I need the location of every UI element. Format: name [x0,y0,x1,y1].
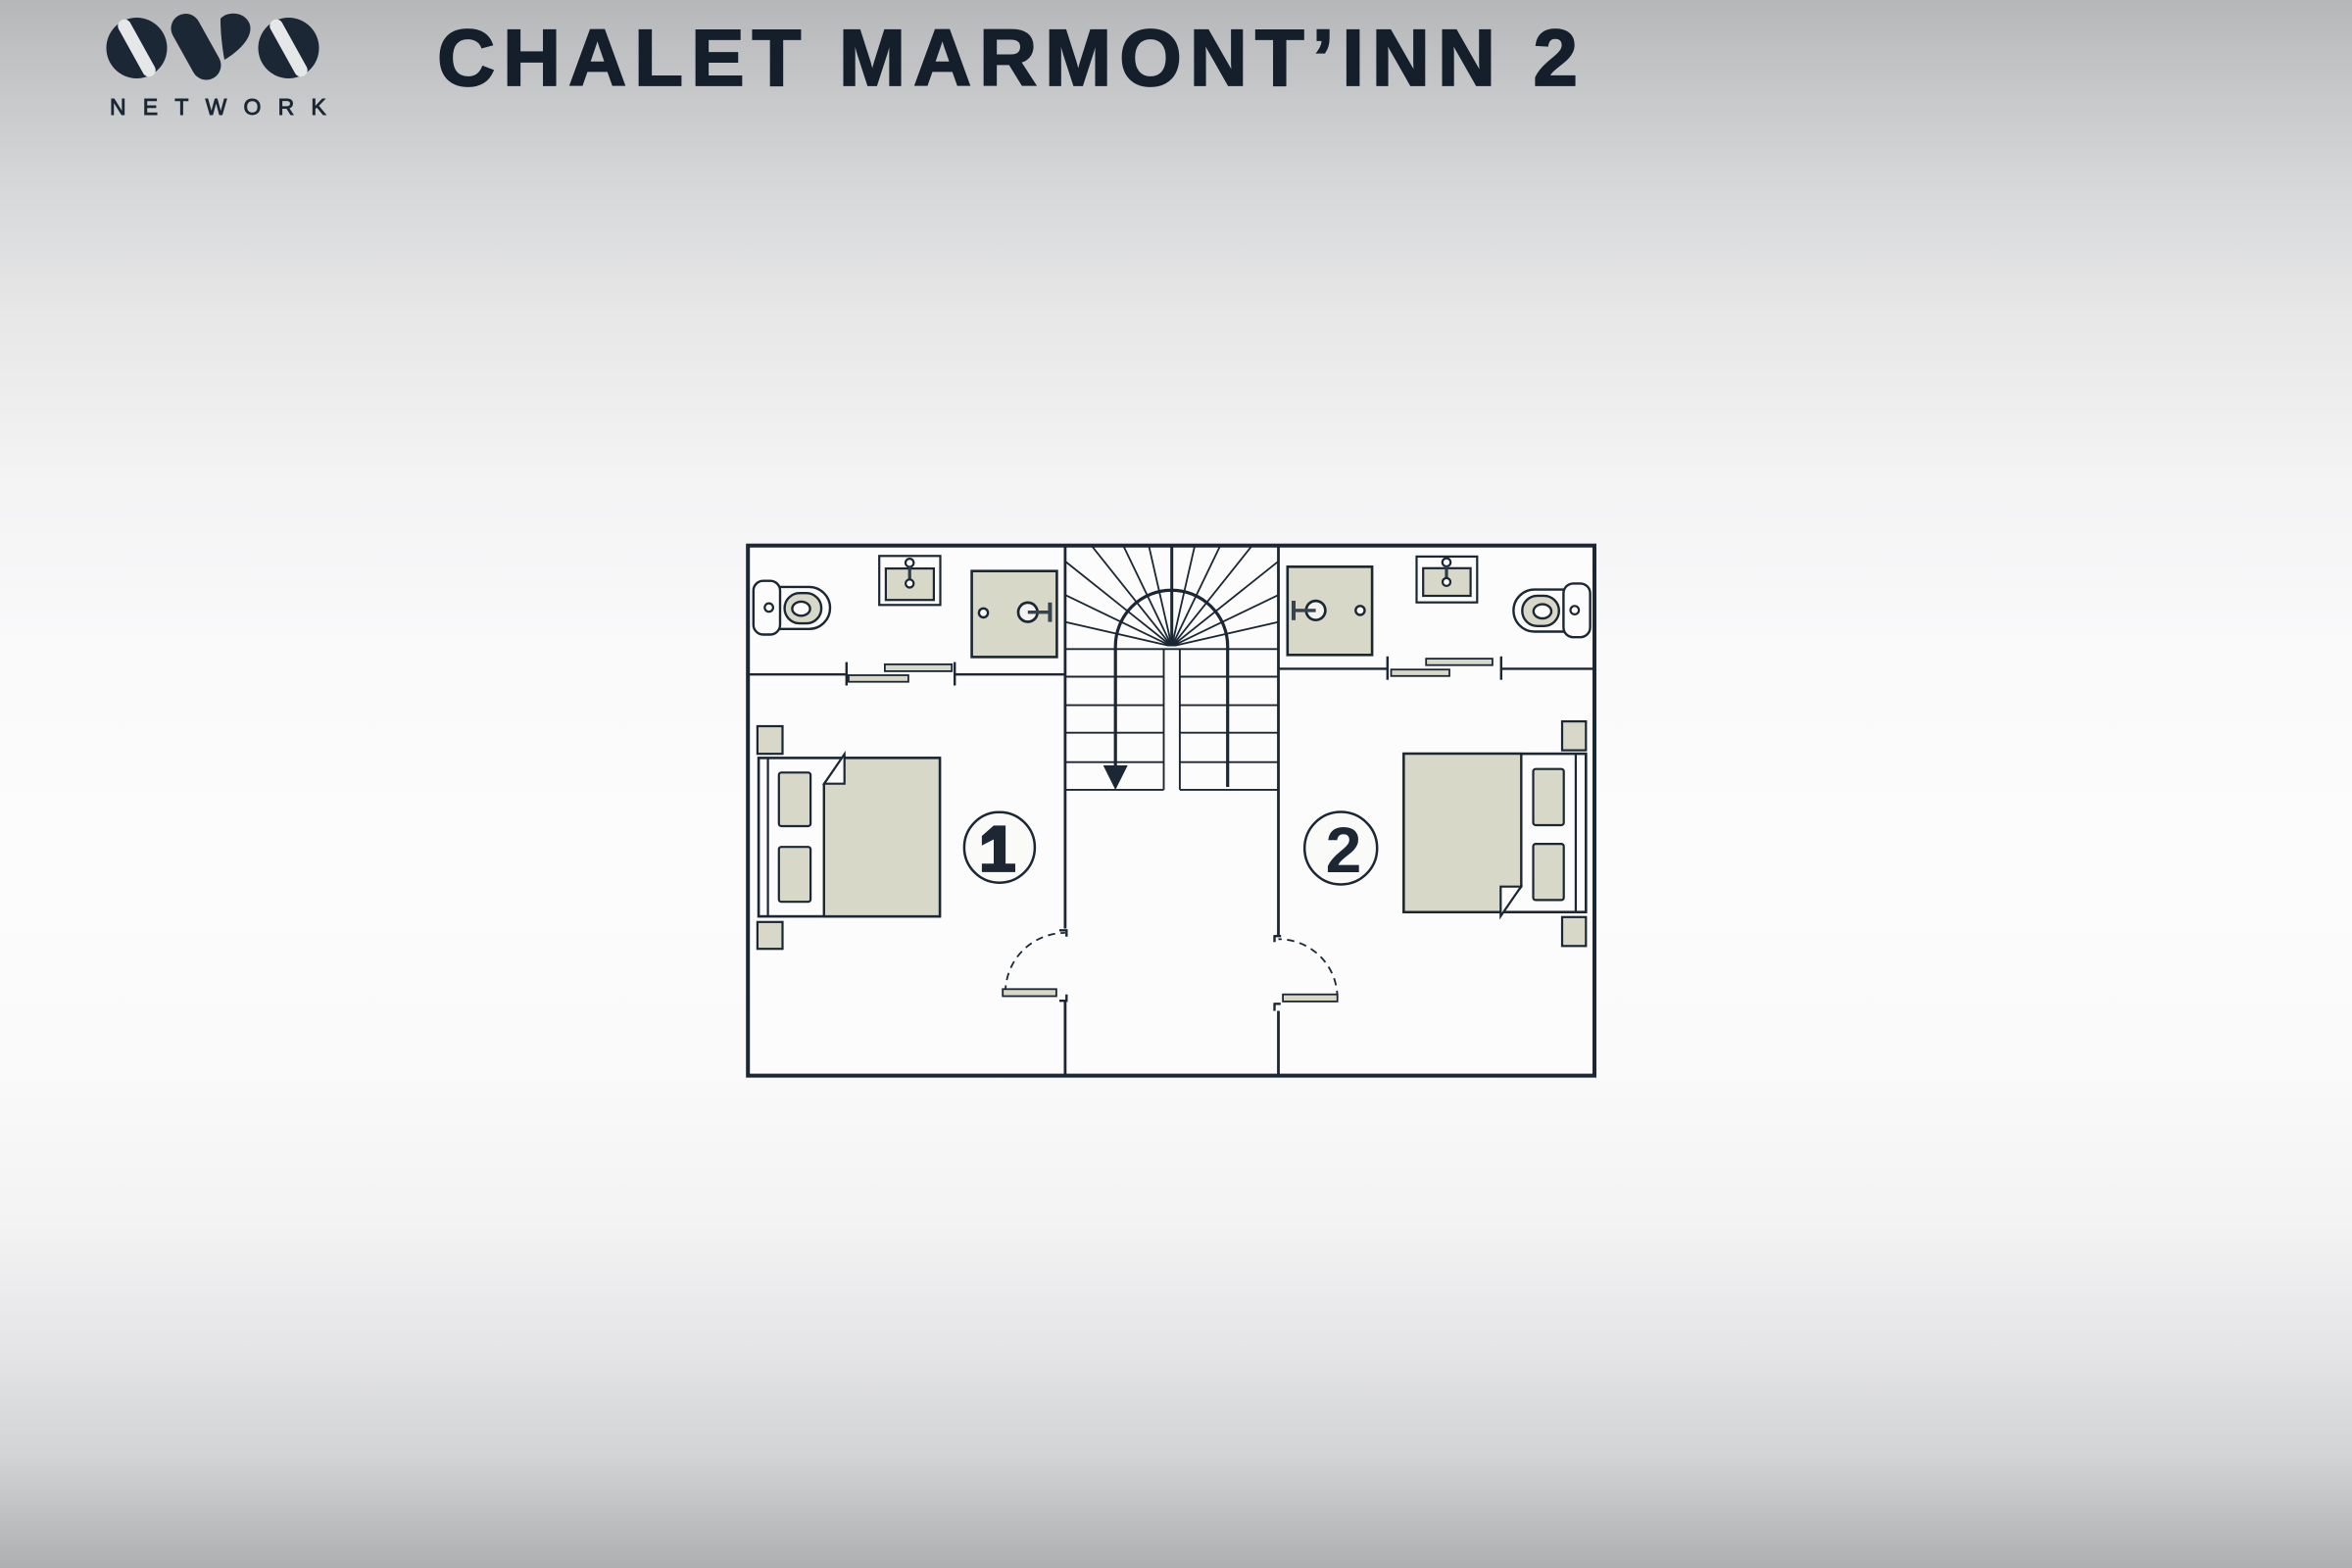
svg-text:NETWORK: NETWORK [110,94,343,120]
svg-text:2: 2 [1326,813,1362,886]
svg-text:CHALET MARMONT’INN 2: CHALET MARMONT’INN 2 [437,14,1586,103]
